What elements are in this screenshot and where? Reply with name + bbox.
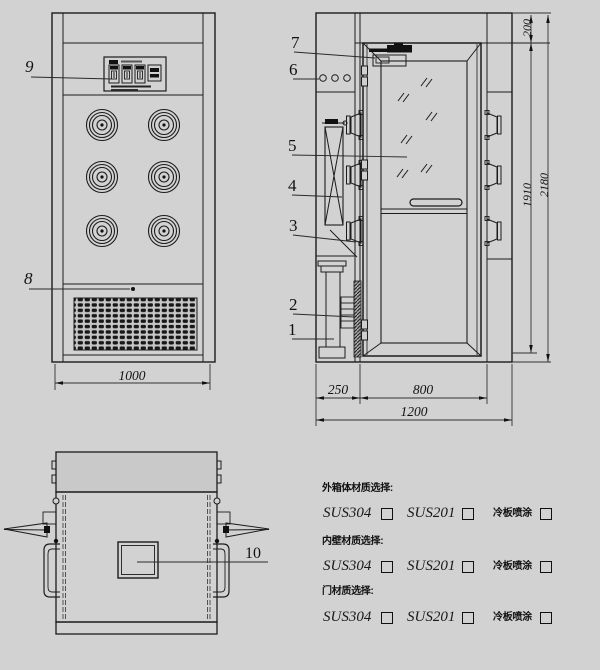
dim-total-width-1200: 1200: [392, 405, 436, 419]
dim-door-width-800: 800: [401, 383, 445, 397]
material-option-label: 冷板喷涂: [493, 508, 532, 520]
nozzle: [485, 161, 501, 190]
material-option-label: 冷板喷涂: [493, 612, 532, 624]
checkbox-door-coldplate: [540, 612, 552, 624]
grille-screw: [131, 287, 135, 291]
door-handle: [410, 199, 462, 206]
dim-header-200: 200: [521, 14, 533, 42]
callout-9: 9: [25, 58, 34, 75]
side-view: [316, 13, 550, 362]
glass-hatch-marks: [397, 78, 437, 178]
callout-3: 3: [289, 217, 298, 234]
nozzle: [87, 110, 118, 141]
checkbox-outer-sus304: [381, 508, 393, 520]
callout-8: 8: [24, 270, 33, 287]
material-option-label: SUS304: [323, 559, 371, 574]
filter-unit: [322, 119, 357, 257]
checkbox-inner-sus201: [462, 561, 474, 573]
checkbox-door-sus304: [381, 612, 393, 624]
nozzle: [87, 162, 118, 193]
checkbox-inner-coldplate: [540, 561, 552, 573]
heater-element: [354, 281, 361, 357]
material-section-title-inner: 内壁材质选择:: [322, 536, 383, 548]
material-option-label: SUS201: [407, 506, 455, 521]
callout-2: 2: [289, 296, 298, 313]
material-option-label: 冷板喷涂: [493, 561, 532, 573]
front-view: [52, 13, 215, 362]
nozzle: [485, 111, 501, 140]
panel-display: [148, 65, 161, 81]
material-section-title-door: 门材质选择:: [322, 586, 374, 598]
nozzle: [149, 110, 180, 141]
dim-width-1000: 1000: [108, 369, 156, 383]
checkbox-outer-coldplate: [540, 508, 552, 520]
door-closer: [369, 43, 412, 67]
material-option-label: SUS304: [323, 506, 371, 521]
control-panel: [104, 57, 166, 91]
nozzle: [87, 216, 118, 247]
callout-5: 5: [288, 137, 297, 154]
dim-total-height-2180: 2180: [538, 170, 550, 200]
material-option-label: SUS304: [323, 610, 371, 625]
dim-plenum-250: 250: [316, 383, 360, 397]
side-view-dimensions: [316, 13, 551, 426]
callout-4: 4: [288, 177, 297, 194]
top-opening: [118, 542, 158, 578]
dim-door-height-1910: 1910: [521, 180, 533, 210]
checkbox-inner-sus304: [381, 561, 393, 573]
nozzle: [485, 217, 501, 246]
material-section-title-outer: 外箱体材质选择:: [322, 483, 393, 495]
checkbox-door-sus201: [462, 612, 474, 624]
nozzle: [149, 162, 180, 193]
left-handle: [4, 512, 60, 597]
callout-10: 10: [245, 546, 261, 562]
door: [362, 43, 482, 356]
nozzle: [149, 216, 180, 247]
indicator-lights: [320, 75, 351, 82]
checkbox-outer-sus201: [462, 508, 474, 520]
callout-1: 1: [288, 321, 297, 338]
air-return-grille: [74, 298, 197, 350]
top-view: [4, 452, 269, 634]
side-nozzles-right: [485, 111, 501, 246]
material-option-label: SUS201: [407, 610, 455, 625]
fan-unit: [318, 261, 354, 358]
callout-6: 6: [289, 61, 298, 78]
material-option-label: SUS201: [407, 559, 455, 574]
front-nozzles: [87, 110, 180, 247]
callout-7: 7: [291, 34, 300, 51]
drawing-canvas: 9 8 7 6 5 4 3 2 1 10 1000 250 800 1200 2…: [0, 0, 600, 670]
